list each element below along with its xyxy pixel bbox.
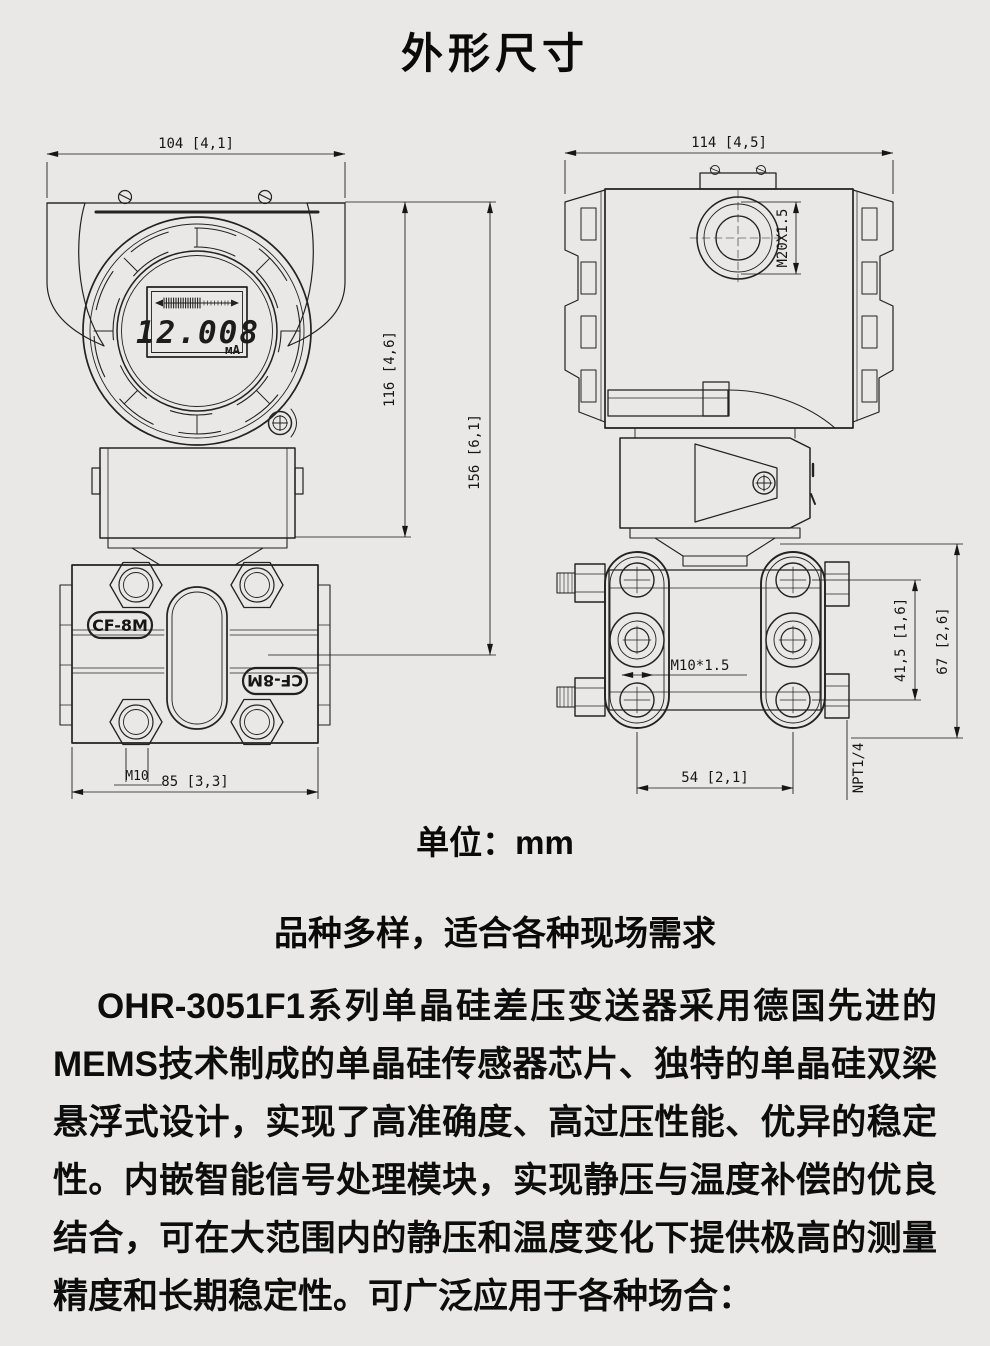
flange-bolt bbox=[110, 700, 162, 745]
flange-marking-text: CF-8M bbox=[247, 671, 303, 690]
lcd-unit: мА bbox=[225, 342, 241, 357]
side-flange bbox=[557, 552, 849, 728]
unit-label: 单位：mm bbox=[0, 816, 990, 864]
description-paragraph: OHR-3051F1系列单晶硅差压变送器采用德国先进的MEMS技术制成的单晶硅传… bbox=[53, 978, 937, 1326]
dim-flange-height: 67 [2,6] bbox=[935, 607, 951, 674]
lcd-value: 12.008 bbox=[136, 315, 260, 351]
dim-bolt-spacing-horizontal: 54 [2,1] bbox=[681, 770, 748, 786]
dim-height-total: 156 [6,1] bbox=[467, 414, 483, 490]
flange-marking: CF-8M bbox=[88, 612, 152, 638]
page: 外形尺寸 bbox=[0, 0, 990, 1346]
transmitter-side-outline bbox=[565, 166, 893, 567]
vent-plug bbox=[557, 678, 605, 716]
flange-bolt bbox=[110, 563, 162, 608]
flange-bolt bbox=[231, 700, 283, 745]
dim-width-top: 114 [4,5] bbox=[691, 135, 767, 151]
front-view-drawing: CF-8M CF-8M 12.008 мА 104 [4,1] bbox=[28, 132, 528, 822]
lcd-display: 12.008 мА bbox=[136, 287, 260, 357]
dim-bolt-thread: M10*1.5 bbox=[670, 658, 729, 674]
flange-marking-text: CF-8M bbox=[92, 616, 148, 635]
front-view-dimensions: 104 [4,1] 116 [4,6] 156 [6,1] 85 [3,3] M… bbox=[47, 136, 496, 799]
bargraph-left-arrow-icon bbox=[155, 300, 163, 307]
vent-plug bbox=[557, 564, 605, 602]
flange-bolt bbox=[231, 563, 283, 608]
dim-height-body: 116 [4,6] bbox=[382, 331, 398, 407]
dim-width-top: 104 [4,1] bbox=[158, 136, 234, 152]
side-view-drawing: 114 [4,5] M20X1.5 41,5 [1,6] 67 [2,6] 54… bbox=[545, 132, 985, 822]
transmitter-front-outline bbox=[47, 191, 345, 566]
dim-drain-thread: NPT1/4 bbox=[851, 743, 867, 794]
cable-gland bbox=[690, 166, 786, 287]
front-flange: CF-8M CF-8M bbox=[60, 563, 330, 745]
page-title: 外形尺寸 bbox=[0, 20, 990, 81]
bargraph-right-arrow-icon bbox=[231, 300, 239, 307]
section-heading: 品种多样，适合各种现场需求 bbox=[0, 906, 990, 955]
dim-bolt-label: M10 bbox=[125, 769, 148, 784]
dim-gland-thread: M20X1.5 bbox=[775, 208, 791, 267]
flange-marking-rotated: CF-8M bbox=[243, 668, 307, 694]
dim-bolt-spacing-vertical: 41,5 [1,6] bbox=[893, 598, 909, 682]
dim-flange-width: 85 [3,3] bbox=[161, 774, 228, 790]
